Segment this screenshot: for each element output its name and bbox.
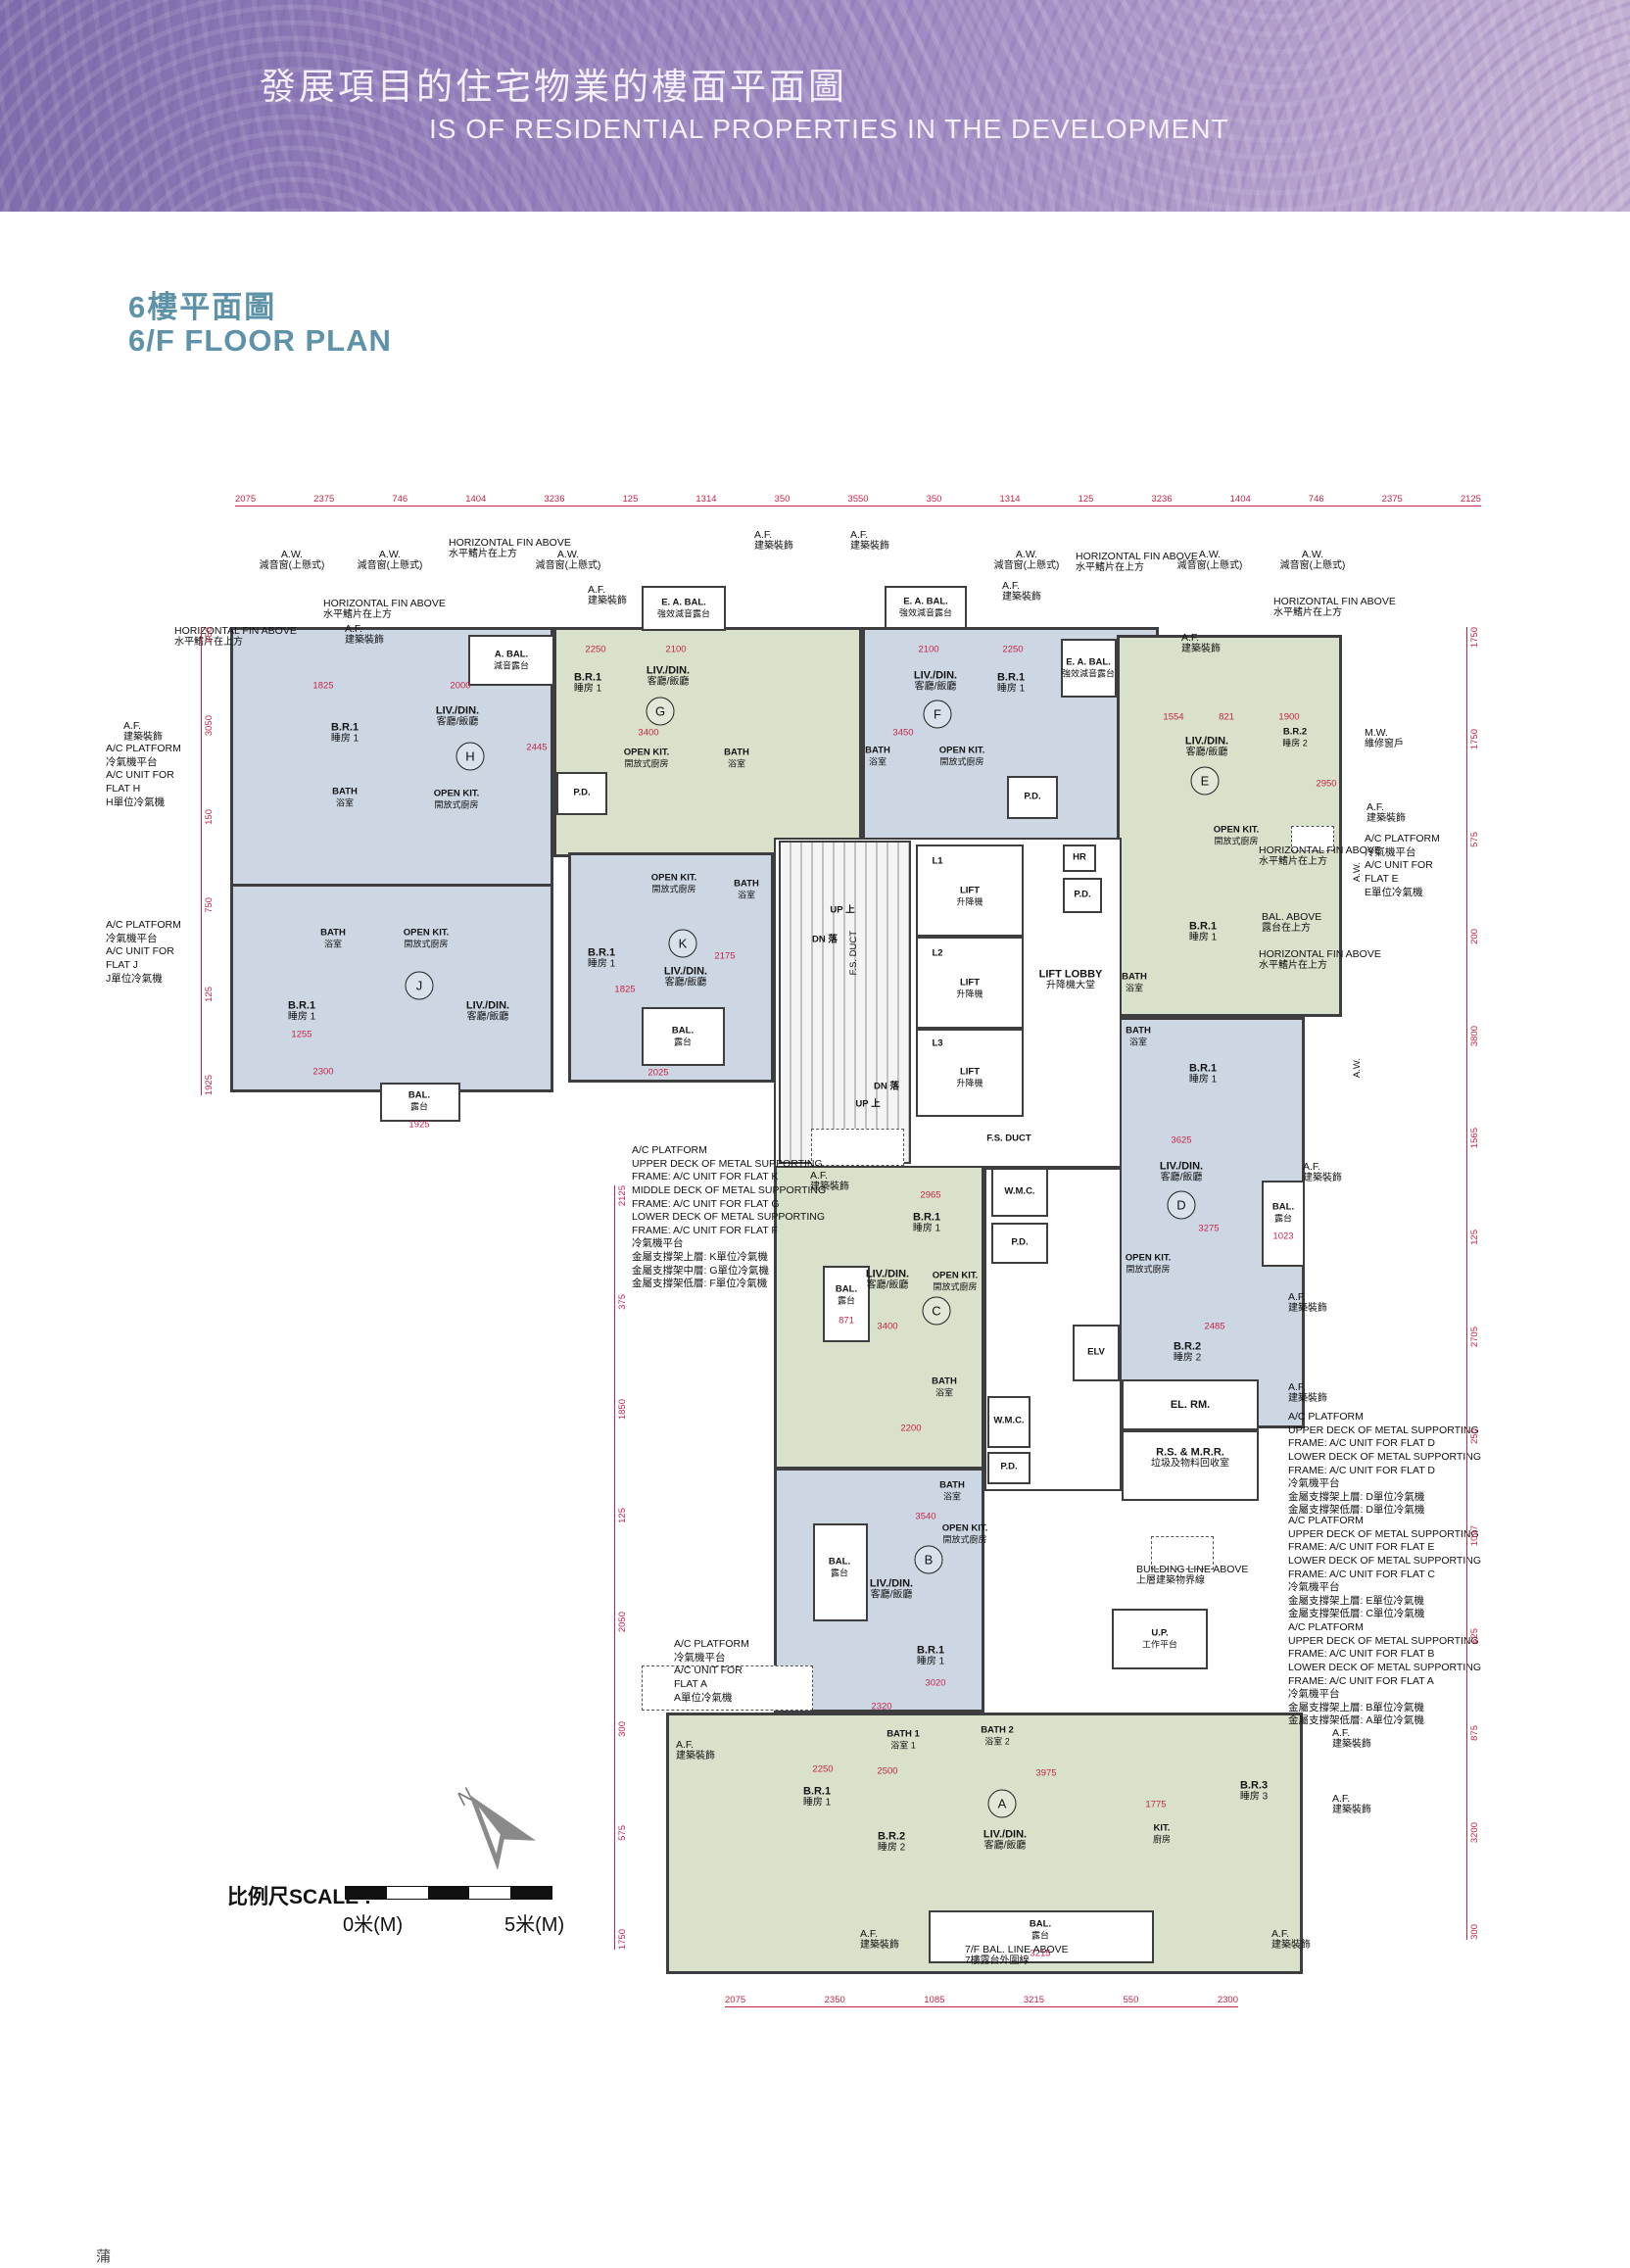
room-g-openkit: OPEN KIT.開放式廚房: [624, 748, 669, 769]
scale-bar: [345, 1886, 552, 1900]
dim-e-4: 2950: [1316, 779, 1336, 790]
ann-7f-bal-line: 7/F BAL. LINE ABOVE7樓露台外圍線: [965, 1944, 1069, 1967]
section-title-zh: 6樓平面圖: [128, 282, 276, 326]
room-e-livdin: LIV./DIN.客廳/飯廳: [1185, 735, 1228, 758]
scale-end-label: 5米(M): [504, 1908, 564, 1937]
dim-a-3: 3975: [1035, 1768, 1056, 1779]
ann-aw-vertical-2: A.W.: [1352, 1058, 1363, 1078]
room-b-livdin: LIV./DIN.客廳/飯廳: [870, 1577, 913, 1601]
flat-d-bal-chip: [1262, 1181, 1305, 1267]
dim-row-bottom: 20752350108532155502300: [725, 2006, 1238, 2018]
room-e-bath: BATH浴室: [1122, 973, 1147, 993]
dim-a-4: 1775: [1145, 1800, 1166, 1810]
ann-hfa-1: HORIZONTAL FIN ABOVE水平鰭片在上方: [174, 625, 297, 649]
room-c-livdin: LIV./DIN.客廳/飯廳: [866, 1268, 909, 1291]
flat-g-area: [553, 627, 862, 857]
dim-g-2: 2100: [665, 645, 686, 655]
footer-partial-text: 蒲: [96, 2245, 111, 2266]
room-h-livdin: LIV./DIN.客廳/飯廳: [436, 704, 479, 728]
dim-f-1: 2100: [918, 645, 938, 655]
ann-af-7: A.F.建築裝飾: [1181, 632, 1221, 655]
room-a-br3: B.R.3睡房 3: [1240, 1779, 1268, 1803]
fs-duct-vertical-label: F.S. DUCT: [848, 931, 859, 975]
ann-hfa-7: HORIZONTAL FIN ABOVE水平鰭片在上方: [1259, 948, 1381, 972]
flat-e-eabal-label: E. A. BAL.強效減音露台: [1062, 658, 1115, 679]
dim-f-2: 2250: [1002, 645, 1023, 655]
room-f-livdin: LIV./DIN.客廳/飯廳: [914, 669, 957, 693]
room-a-br1: B.R.1睡房 1: [803, 1785, 831, 1809]
dim-a-1: 2250: [812, 1764, 833, 1775]
dim-e-2: 821: [1219, 712, 1234, 723]
room-g-bath: BATH浴室: [724, 748, 749, 769]
room-j-livdin: LIV./DIN.客廳/飯廳: [466, 999, 509, 1023]
lift-3-name: LIFT升降機: [956, 1068, 983, 1088]
ann-hfa-4: HORIZONTAL FIN ABOVE水平鰭片在上方: [1076, 551, 1198, 574]
dim-c-3: 2200: [900, 1424, 921, 1434]
callout-ac-flat-a: A/C PLATFORM冷氣機平台A/C UNIT FORFLAT AA單位冷氣…: [674, 1638, 749, 1705]
flat-j-area: [230, 884, 553, 1092]
callout-ac-flats-ec: A/C PLATFORMUPPER DECK OF METAL SUPPORTI…: [1288, 1515, 1481, 1621]
room-j-bal: BAL.露台: [408, 1091, 430, 1112]
dim-g-1: 2250: [585, 645, 605, 655]
ann-aw-2: A.W.減音窗(上懸式): [358, 549, 423, 572]
room-e-openkit: OPEN KIT.開放式廚房: [1214, 826, 1259, 846]
room-d-openkit: OPEN KIT.開放式廚房: [1126, 1254, 1171, 1275]
room-k-livdin: LIV./DIN.客廳/飯廳: [664, 965, 707, 989]
room-k-br1: B.R.1睡房 1: [588, 946, 615, 970]
dim-b-2: 3020: [925, 1678, 945, 1689]
ann-af-16: A.F.建築裝飾: [860, 1928, 899, 1952]
header-title-zh: 發展項目的住宅物業的樓面平面圖: [260, 57, 847, 110]
room-a-bal: BAL.露台: [1030, 1920, 1051, 1941]
lift-3-label: L3: [932, 1039, 942, 1050]
ann-af-13: A.F.建築裝飾: [1332, 1793, 1371, 1816]
lift-2-name: LIFT升降機: [956, 979, 983, 999]
north-arrow-icon: N: [446, 1775, 536, 1874]
dim-j-1: 1255: [291, 1030, 312, 1040]
flat-circle-b: B: [915, 1546, 943, 1574]
room-a-kit: KIT.廚房: [1153, 1824, 1171, 1845]
flat-g-eabal-label: E. A. BAL.強效減音露台: [657, 599, 710, 619]
callout-ac-flat-e: A/C PLATFORM冷氣機平台A/C UNIT FORFLAT EE單位冷氣…: [1365, 833, 1440, 899]
stair-up-label-1: UP 上: [830, 906, 854, 917]
section-title-en: 6/F FLOOR PLAN: [128, 323, 392, 359]
room-d-bath: BATH浴室: [1126, 1027, 1151, 1047]
ann-af-12: A.F.建築裝飾: [1332, 1727, 1371, 1751]
dim-e-3: 1900: [1278, 712, 1299, 723]
dim-c-1: 2965: [920, 1190, 940, 1201]
rs-mrr-label: R.S. & M.R.R.垃圾及物料回收室: [1151, 1446, 1229, 1470]
room-b-bath: BATH浴室: [939, 1481, 965, 1502]
flat-circle-c: C: [923, 1297, 951, 1326]
scale-start-label: 0米(M): [343, 1908, 403, 1937]
ann-af-9: A.F.建築裝飾: [1303, 1161, 1342, 1184]
room-f-br1: B.R.1睡房 1: [997, 671, 1025, 695]
ann-af-1: A.F.建築裝飾: [123, 720, 163, 744]
room-h-br1: B.R.1睡房 1: [331, 721, 359, 745]
ann-aw-1: A.W.減音窗(上懸式): [260, 549, 325, 572]
room-e-br2: B.R.2睡房 2: [1282, 728, 1308, 748]
room-g-br1: B.R.1睡房 1: [574, 671, 601, 695]
room-a-bath1: BATH 1浴室 1: [887, 1730, 920, 1751]
dim-a-2: 2500: [877, 1766, 897, 1777]
ann-af-6: A.F.建築裝飾: [1002, 580, 1041, 603]
dim-g-3: 3400: [638, 728, 658, 739]
flat-f-pd-label: P.D.: [1024, 793, 1040, 803]
room-j-openkit: OPEN KIT.開放式廚房: [404, 929, 449, 949]
callout-ac-flats-kgf: A/C PLATFORMUPPER DECK OF METAL SUPPORTI…: [632, 1144, 826, 1291]
flat-circle-e: E: [1191, 767, 1220, 796]
room-g-livdin: LIV./DIN.客廳/飯廳: [647, 664, 690, 688]
pd-label-1: P.D.: [1011, 1238, 1028, 1249]
ann-bal-above: BAL. ABOVE露台在上方: [1262, 911, 1321, 935]
staircase: [779, 841, 911, 1164]
el-rm-label: EL. RM.: [1171, 1399, 1210, 1411]
stair-dn-label-1: DN 落: [812, 936, 838, 946]
dim-d-2: 3275: [1198, 1224, 1219, 1234]
ann-aw-vertical-1: A.W.: [1352, 862, 1363, 882]
dim-d-1: 3625: [1171, 1135, 1191, 1146]
flat-circle-a: A: [988, 1790, 1017, 1818]
callout-ac-flats-ba: A/C PLATFORMUPPER DECK OF METAL SUPPORTI…: [1288, 1621, 1481, 1728]
callout-ac-flat-dd: A/C PLATFORMUPPER DECK OF METAL SUPPORTI…: [1288, 1411, 1481, 1518]
room-k-bal: BAL.露台: [672, 1027, 694, 1047]
dim-d-3: 2485: [1204, 1322, 1224, 1332]
room-c-br1: B.R.1睡房 1: [913, 1211, 940, 1234]
ann-af-3: A.F.建築裝飾: [588, 584, 627, 607]
header-banner: 發展項目的住宅物業的樓面平面圖 IS OF RESIDENTIAL PROPER…: [0, 0, 1630, 212]
room-b-bal: BAL.露台: [829, 1558, 850, 1578]
room-c-openkit: OPEN KIT.開放式廚房: [933, 1272, 978, 1292]
room-d-br1: B.R.1睡房 1: [1189, 1062, 1217, 1086]
flat-circle-k: K: [669, 930, 697, 958]
dim-k-3: 2025: [647, 1068, 668, 1079]
room-b-br1: B.R.1睡房 1: [917, 1644, 944, 1667]
room-c-bal: BAL.露台: [836, 1285, 857, 1306]
dim-col-left: 25030501507501251925: [201, 627, 215, 1095]
flat-f-eabal-label: E. A. BAL.強效減音露台: [899, 598, 952, 618]
room-a-up: U.P.工作平台: [1142, 1629, 1177, 1650]
dim-f-3: 3450: [892, 728, 913, 739]
lift-2-label: L2: [932, 949, 942, 960]
dim-j-2: 1925: [408, 1120, 429, 1131]
dim-c-4: 871: [839, 1316, 854, 1327]
room-e-br1: B.R.1睡房 1: [1189, 920, 1217, 943]
callout-ac-flat-j: A/C PLATFORM冷氣機平台A/C UNIT FORFLAT JJ單位冷氣…: [106, 919, 181, 986]
room-a-bath2: BATH 2浴室 2: [981, 1726, 1014, 1747]
dim-d-4: 1023: [1272, 1231, 1293, 1242]
pd-label-core: P.D.: [1074, 891, 1090, 901]
room-k-bath: BATH浴室: [734, 880, 759, 900]
dim-h-3: 2445: [526, 743, 547, 753]
ann-af-17: A.F.建築裝飾: [1271, 1928, 1311, 1952]
ann-af-4: A.F.建築裝飾: [754, 529, 793, 553]
flat-circle-j: J: [406, 972, 434, 1000]
room-d-br2: B.R.2睡房 2: [1174, 1340, 1201, 1364]
room-c-bath: BATH浴室: [932, 1377, 957, 1398]
room-a-br2: B.R.2睡房 2: [878, 1830, 905, 1854]
dim-e-1: 1554: [1163, 712, 1183, 723]
ann-af-5: A.F.建築裝飾: [850, 529, 889, 553]
dim-col-right: 1750175057520038001565125270525010976258…: [1466, 627, 1480, 1940]
flat-circle-h: H: [456, 743, 485, 771]
ann-af-14: A.F.建築裝飾: [676, 1739, 715, 1762]
hr-label: HR: [1073, 853, 1086, 864]
room-h-bath: BATH浴室: [332, 788, 358, 808]
dim-b-3: 2320: [871, 1702, 891, 1713]
room-f-openkit: OPEN KIT.開放式廚房: [939, 747, 984, 767]
ann-aw-4: A.W.減音窗(上懸式): [994, 549, 1060, 572]
lift-1-label: L1: [932, 857, 942, 868]
lift-1-name: LIFT升降機: [956, 887, 983, 907]
fs-duct-label: F.S. DUCT: [986, 1134, 1031, 1145]
brochure-page: 發展項目的住宅物業的樓面平面圖 IS OF RESIDENTIAL PROPER…: [0, 0, 1630, 2268]
wmc-label-1: W.M.C.: [1004, 1187, 1034, 1198]
room-d-bal: BAL.露台: [1272, 1203, 1294, 1224]
room-k-openkit: OPEN KIT.開放式廚房: [651, 874, 696, 894]
pd-label-2: P.D.: [1000, 1463, 1017, 1473]
stair-up-label-2: UP 上: [855, 1100, 880, 1111]
dim-row-top: 2075237574614043236125131435035503501314…: [235, 506, 1481, 517]
dim-h-2: 2000: [450, 681, 470, 692]
dim-k-2: 1825: [614, 985, 635, 995]
callout-ac-flat-h: A/C PLATFORM冷氣機平台A/C UNIT FORFLAT HH單位冷氣…: [106, 743, 181, 809]
ann-hfa-6: HORIZONTAL FIN ABOVE水平鰭片在上方: [1259, 844, 1381, 868]
room-j-bath: BATH浴室: [320, 929, 346, 949]
flat-g-pd-label: P.D.: [573, 789, 590, 799]
dim-k-1: 2175: [714, 951, 735, 962]
wmc-label-2: W.M.C.: [993, 1417, 1024, 1427]
ann-hfa-5: HORIZONTAL FIN ABOVE水平鰭片在上方: [1273, 596, 1396, 619]
flat-circle-g: G: [647, 698, 675, 726]
room-j-br1: B.R.1睡房 1: [288, 999, 315, 1023]
ann-af-2: A.F.建築裝飾: [345, 623, 384, 647]
ann-af-8: A.F.建築裝飾: [1366, 801, 1406, 825]
room-b-openkit: OPEN KIT.開放式廚房: [942, 1524, 987, 1545]
ann-af-11: A.F.建築裝飾: [1288, 1381, 1327, 1405]
ann-aw-6: A.W.減音窗(上懸式): [1280, 549, 1346, 572]
room-f-bath: BATH浴室: [865, 747, 890, 767]
dim-col-mid-left: 2125375185012520503005751750: [614, 1185, 628, 1950]
room-a-livdin: LIV./DIN.客廳/飯廳: [983, 1828, 1027, 1852]
dim-j-3: 2300: [312, 1067, 333, 1078]
dim-c-2: 3400: [877, 1322, 897, 1332]
dim-b-1: 3540: [915, 1512, 935, 1522]
ann-building-line: BUILDING LINE ABOVE上層建築物界線: [1136, 1564, 1248, 1587]
stair-dn-label-2: DN 落: [874, 1083, 899, 1093]
room-d-livdin: LIV./DIN.客廳/飯廳: [1160, 1160, 1203, 1183]
flat-h-abal-label: A. BAL.減音露台: [494, 651, 529, 671]
ann-hfa-3: HORIZONTAL FIN ABOVE水平鰭片在上方: [449, 537, 571, 560]
flat-circle-f: F: [924, 700, 952, 729]
flat-circle-d: D: [1168, 1191, 1196, 1220]
room-h-openkit: OPEN KIT.開放式廚房: [434, 790, 479, 810]
ann-mw: M.W.維修窗戶: [1365, 727, 1404, 750]
lift-lobby-label: LIFT LOBBY升降機大堂: [1039, 968, 1103, 991]
dim-h-1: 1825: [312, 681, 333, 692]
elv-label: ELV: [1087, 1348, 1105, 1359]
ann-hfa-2: HORIZONTAL FIN ABOVE水平鰭片在上方: [323, 598, 446, 621]
header-title-en: IS OF RESIDENTIAL PROPERTIES IN THE DEVE…: [429, 114, 1229, 145]
ann-af-10: A.F.建築裝飾: [1288, 1291, 1327, 1315]
